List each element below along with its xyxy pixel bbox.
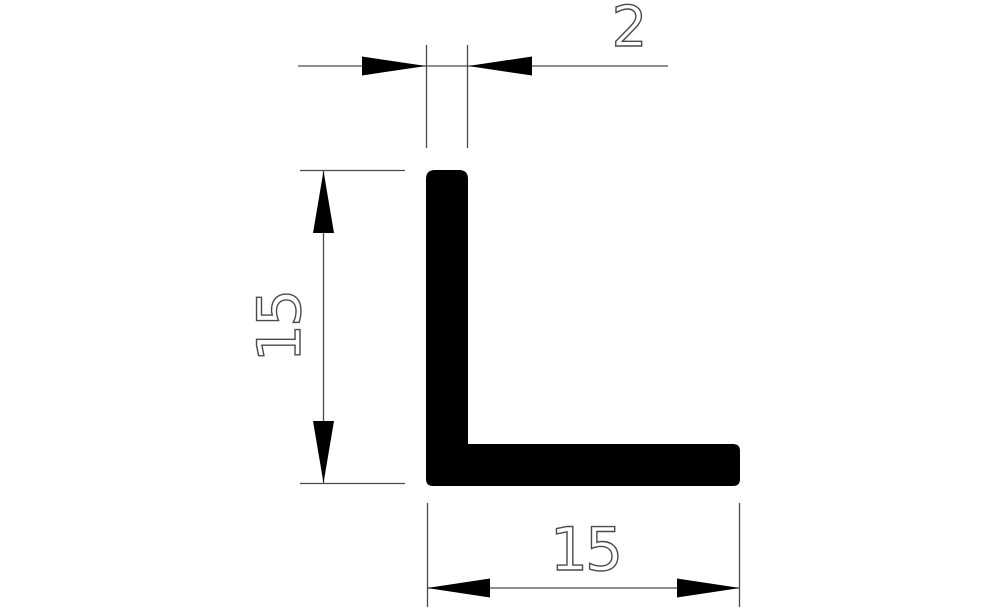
height-arrowhead-down-icon bbox=[313, 421, 334, 483]
width-arrowhead-right-icon bbox=[677, 579, 740, 598]
l-profile-shape bbox=[426, 170, 740, 486]
width-dimension-label: 15 bbox=[550, 515, 620, 585]
width-dimension: 15 bbox=[427, 503, 740, 607]
thickness-dimension: 2 bbox=[298, 0, 668, 148]
thickness-arrowhead-right-icon bbox=[468, 57, 532, 76]
l-profile-technical-drawing: 2 15 15 bbox=[0, 0, 1000, 614]
height-dimension-label: 15 bbox=[245, 292, 315, 362]
thickness-arrowhead-left-icon bbox=[362, 57, 426, 76]
height-dimension: 15 bbox=[245, 171, 405, 484]
thickness-dimension-label: 2 bbox=[612, 0, 645, 60]
drawing-canvas: 2 15 15 bbox=[0, 0, 1000, 614]
height-arrowhead-up-icon bbox=[313, 171, 334, 233]
width-arrowhead-left-icon bbox=[427, 579, 490, 598]
